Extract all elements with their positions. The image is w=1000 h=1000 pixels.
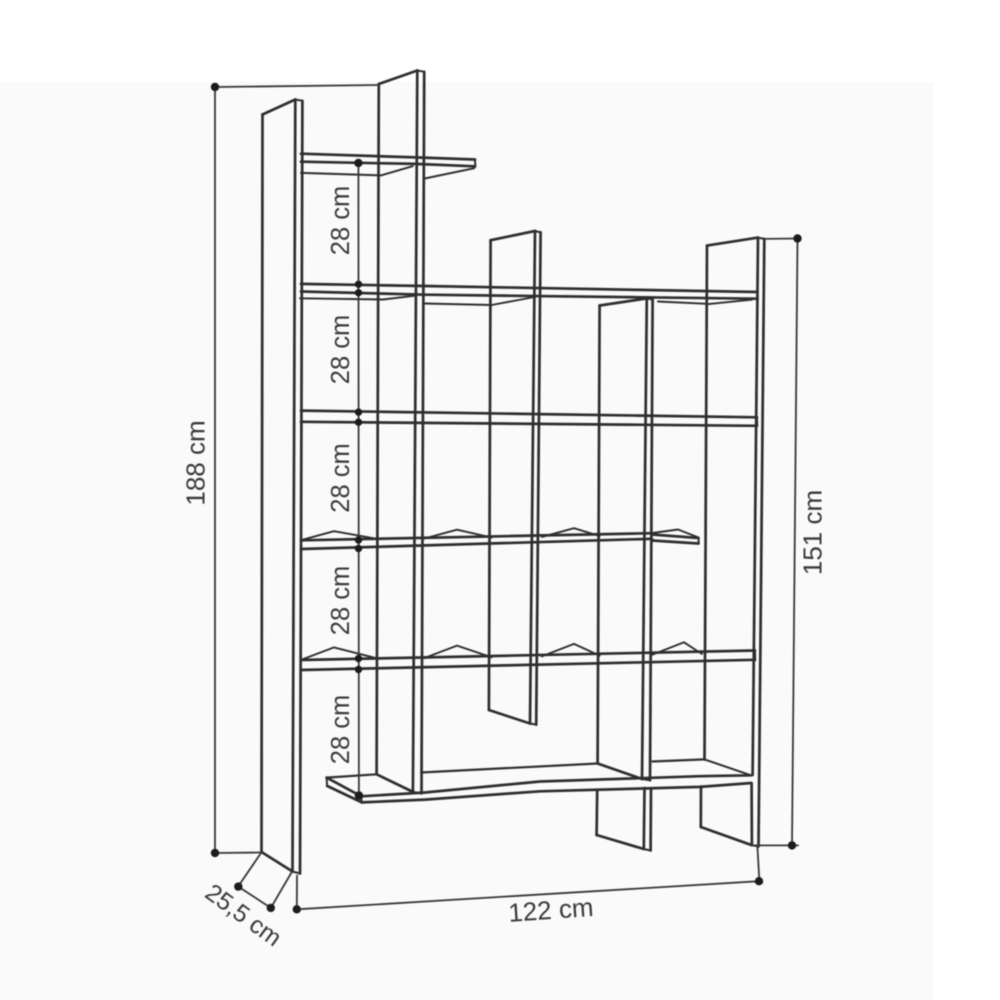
svg-text:28 cm: 28 cm: [327, 186, 355, 255]
svg-text:28 cm: 28 cm: [327, 695, 355, 764]
svg-text:151 cm: 151 cm: [797, 490, 827, 575]
svg-text:28 cm: 28 cm: [327, 566, 355, 635]
svg-text:28 cm: 28 cm: [327, 315, 355, 384]
svg-text:28 cm: 28 cm: [327, 443, 355, 512]
svg-text:188 cm: 188 cm: [181, 420, 211, 505]
svg-text:122 cm: 122 cm: [507, 892, 594, 928]
